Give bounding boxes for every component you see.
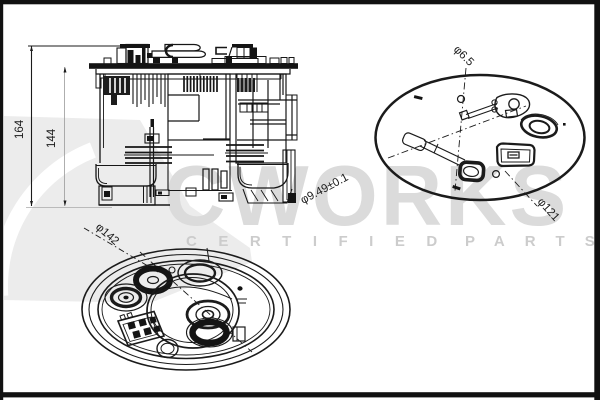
svg-text:PARTS: PARTS [465,233,600,250]
svg-text:164: 164 [14,119,26,139]
svg-text:144: 144 [46,128,58,148]
svg-text:CERTIFIED: CERTIFIED [186,233,459,250]
